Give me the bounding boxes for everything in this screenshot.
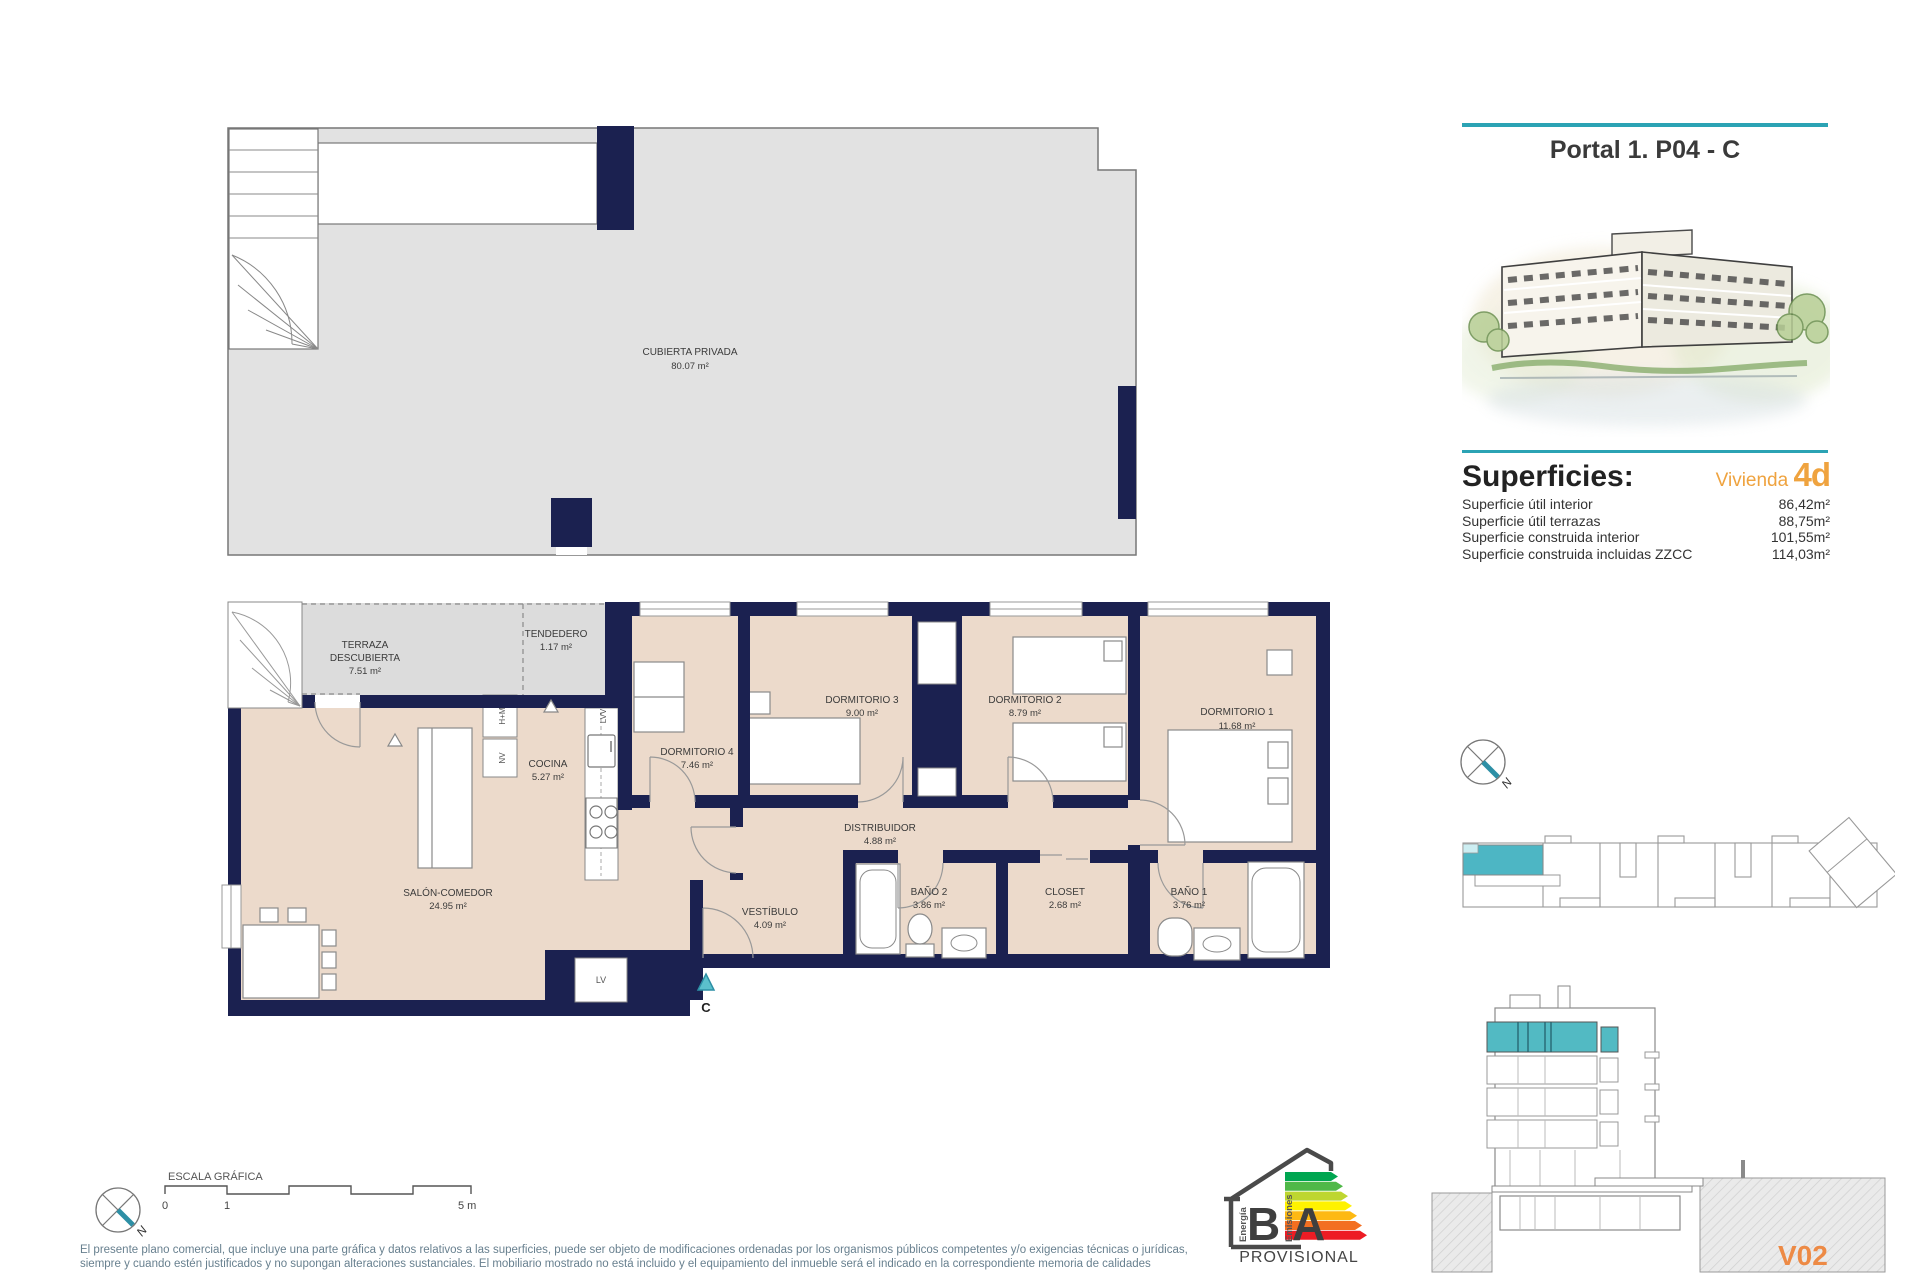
bathtub: [1248, 862, 1304, 958]
svg-text:LVV: LVV: [599, 708, 608, 723]
svg-text:BAÑO 1: BAÑO 1: [1171, 885, 1208, 898]
svg-text:DESCUBIERTA: DESCUBIERTA: [330, 653, 401, 664]
svg-text:9.00 m²: 9.00 m²: [846, 708, 878, 719]
roof-plan: CUBIERTA PRIVADA 80.07 m²: [220, 118, 1145, 563]
svg-text:SALÓN-COMEDOR: SALÓN-COMEDOR: [403, 886, 492, 899]
floor-plan: TERRAZA DESCUBIERTA 7.51 m² TENDEDERO 1.…: [220, 590, 1345, 1040]
svg-text:VESTÍBULO: VESTÍBULO: [742, 905, 798, 918]
svg-text:DORMITORIO 4: DORMITORIO 4: [660, 747, 734, 758]
svg-text:8.79 m²: 8.79 m²: [1009, 708, 1041, 719]
building-illustration: [1462, 172, 1830, 437]
svg-text:DORMITORIO 1: DORMITORIO 1: [1200, 707, 1274, 718]
roof-room-label: CUBIERTA PRIVADA: [642, 347, 737, 358]
svg-text:1: 1: [224, 1200, 230, 1212]
highlighted-floor: [1487, 1022, 1597, 1052]
energy-letter: B: [1247, 1198, 1280, 1250]
vivienda-tag: Vivienda 4d: [1716, 456, 1830, 494]
superficies-panel: Superficies: Vivienda 4d Superficie útil…: [1462, 456, 1830, 562]
svg-text:11.68 m²: 11.68 m²: [1219, 721, 1256, 732]
emissions-word: Emisiones: [1284, 1194, 1295, 1242]
north-label: N: [134, 1223, 151, 1239]
svg-text:7.46 m²: 7.46 m²: [681, 760, 713, 771]
svg-text:0: 0: [162, 1200, 168, 1212]
svg-text:5 m: 5 m: [458, 1200, 476, 1212]
scale-bar: ESCALA GRÁFICA 0 1 5 m: [150, 1165, 490, 1220]
superficies-row: Superficie construida interior101,55m²: [1462, 529, 1830, 546]
energy-rating-logo: B A Energía Emisiones PROVISIONAL: [1210, 1135, 1380, 1275]
disclaimer: El presente plano comercial, que incluye…: [80, 1244, 1188, 1271]
provisional-label: PROVISIONAL: [1239, 1249, 1358, 1266]
vivienda-label: Vivienda: [1716, 470, 1789, 491]
svg-text:5.27 m²: 5.27 m²: [532, 772, 564, 783]
svg-text:7.51 m²: 7.51 m²: [349, 666, 381, 677]
site-key-plan: [1455, 800, 1895, 920]
north-compass: N: [1448, 727, 1528, 807]
superficies-row: Superficie construida incluidas ZZCC114,…: [1462, 546, 1830, 563]
svg-text:3.76 m²: 3.76 m²: [1173, 900, 1205, 911]
svg-text:COCINA: COCINA: [529, 759, 568, 770]
header-accent-line: [1462, 123, 1828, 127]
svg-text:4.09 m²: 4.09 m²: [754, 920, 786, 931]
superficies-row: Superficie útil interior86,42m²: [1462, 496, 1830, 513]
svg-text:BAÑO 2: BAÑO 2: [911, 885, 948, 898]
north-label: N: [1499, 775, 1516, 791]
svg-text:DORMITORIO 3: DORMITORIO 3: [825, 695, 899, 706]
page-title: Portal 1. P04 - C: [1462, 136, 1828, 165]
svg-text:2.68 m²: 2.68 m²: [1049, 900, 1081, 911]
sink: [942, 928, 986, 958]
entrance-label: C: [701, 1000, 711, 1015]
dining-table: [243, 925, 319, 998]
svg-text:LV: LV: [596, 975, 606, 985]
svg-text:DISTRIBUIDOR: DISTRIBUIDOR: [844, 823, 916, 834]
svg-text:3.86 m²: 3.86 m²: [913, 900, 945, 911]
svg-text:TENDEDERO: TENDEDERO: [525, 629, 588, 640]
plan-sheet: { "sheet": {"title": "Portal 1. P04 - C"…: [0, 0, 1920, 1280]
energy-word: Energía: [1238, 1206, 1249, 1242]
kitchen-counter: [585, 708, 618, 880]
toilet: [908, 914, 932, 944]
svg-text:1.17 m²: 1.17 m²: [540, 642, 572, 653]
svg-text:TERRAZA: TERRAZA: [342, 640, 389, 651]
version-code: V02: [1778, 1240, 1828, 1272]
terrace-stair: [228, 602, 302, 708]
sink: [1194, 928, 1240, 960]
svg-text:4.88 m²: 4.88 m²: [864, 836, 896, 847]
bathtub: [856, 864, 900, 954]
section-diagram: [1425, 983, 1895, 1278]
superficies-accent-line: [1462, 450, 1828, 453]
roof-stair: [229, 129, 318, 349]
vivienda-code: 4d: [1793, 456, 1830, 493]
superficies-heading: Superficies:: [1462, 460, 1634, 494]
toilet: [1158, 918, 1192, 956]
cooktop-icon: [586, 798, 617, 848]
scale-bar-title: ESCALA GRÁFICA: [168, 1170, 263, 1183]
svg-text:H+M: H+M: [498, 707, 507, 724]
svg-text:NV: NV: [498, 752, 507, 764]
roof-room-area: 80.07 m²: [671, 361, 709, 372]
svg-text:DORMITORIO 2: DORMITORIO 2: [988, 695, 1062, 706]
svg-text:24.95 m²: 24.95 m²: [429, 901, 467, 912]
svg-text:CLOSET: CLOSET: [1045, 887, 1085, 898]
emissions-letter: A: [1292, 1198, 1325, 1250]
superficies-row: Superficie útil terrazas88,75m²: [1462, 513, 1830, 530]
